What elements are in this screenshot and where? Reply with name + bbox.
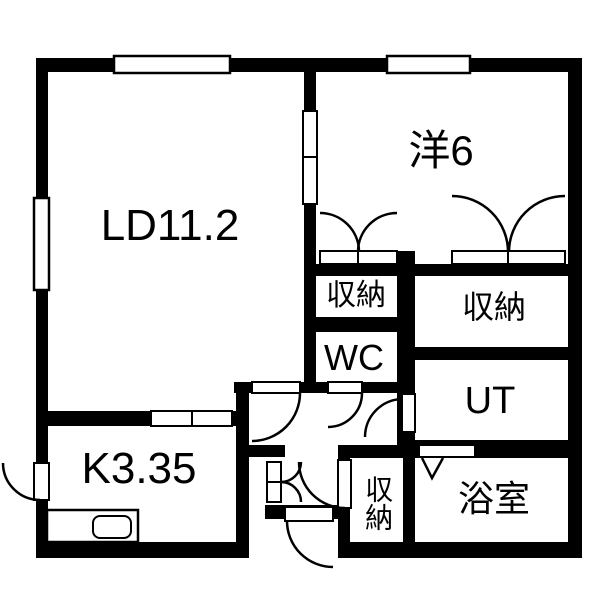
room-label-wc: WC <box>324 340 384 376</box>
door-leaf-wc <box>328 382 362 393</box>
door-arc <box>281 482 301 502</box>
floorplan: LD11.2 洋6 収納 WC 収納 UT 浴室 K3.35 収納 <box>0 0 600 600</box>
door-leaf-kitchen-back <box>34 463 49 500</box>
room-label-closet-upper: 収納 <box>326 281 386 311</box>
kitchen-sink <box>93 516 131 538</box>
hall-cabinet <box>267 462 301 502</box>
closet-doors-western <box>320 196 565 264</box>
wall-outer-bottom-right <box>338 542 582 558</box>
wall-closet-row <box>304 264 570 276</box>
room-label-kitchen: K3.35 <box>82 447 197 491</box>
room-label-closet-lower: 収納 <box>361 475 393 531</box>
door-leaf-ld <box>252 382 300 393</box>
door-arc <box>358 213 397 252</box>
room-label-ld: LD11.2 <box>101 204 240 248</box>
door-swing-bath <box>422 458 443 478</box>
wall-corridor-bottom-left <box>236 445 285 457</box>
door-arc <box>452 196 508 252</box>
door-leaf-entry <box>285 507 333 521</box>
wall-kitchen-top-left <box>36 411 151 426</box>
wall-kitchen-east <box>236 382 249 558</box>
wall-outer-bottom-left <box>36 542 248 558</box>
door-leaf-bath <box>419 445 475 457</box>
door-arc <box>509 196 565 252</box>
wall-closet-wc <box>313 317 397 332</box>
room-label-closet-right: 収納 <box>462 291 526 323</box>
wall-outer-right <box>568 58 582 558</box>
window-ld-top <box>114 56 230 73</box>
room-label-ut: UT <box>465 382 516 420</box>
door-arc-wc <box>328 393 362 427</box>
room-label-western: 洋6 <box>408 130 473 172</box>
door-arc <box>320 213 359 252</box>
window-western-top <box>387 56 470 73</box>
kitchen-fixtures <box>47 510 138 542</box>
window-ld-left <box>34 198 49 290</box>
wall-closet-ut <box>415 347 570 360</box>
door-arc-ld <box>252 393 300 441</box>
wall-closet-lower-east <box>403 445 415 558</box>
room-label-bath: 浴室 <box>458 481 530 517</box>
door-arc-entry <box>287 521 333 567</box>
sliding-doors <box>151 111 317 426</box>
door-leaf-ut <box>402 394 415 432</box>
door-leaf-closet-lower <box>338 460 351 508</box>
